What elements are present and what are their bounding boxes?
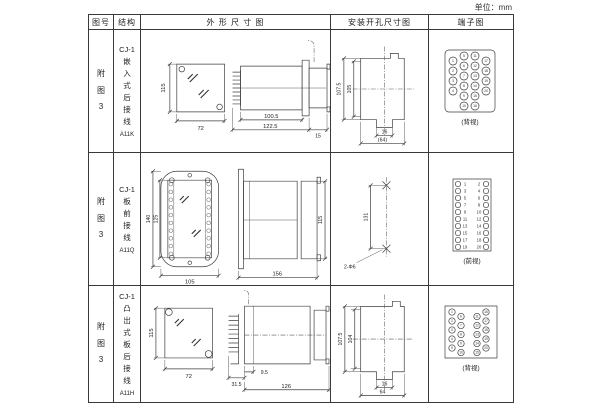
svg-text:19: 19 bbox=[463, 245, 468, 250]
dim-label: 115 bbox=[161, 83, 167, 92]
table-row-a11q: 附图3 CJ-1 板前接线 A11Q bbox=[89, 153, 513, 286]
dim-label: 122.5 bbox=[263, 124, 277, 130]
model-label: CJ-1 bbox=[119, 45, 135, 54]
svg-text:12: 12 bbox=[475, 324, 479, 328]
svg-text:1: 1 bbox=[452, 59, 454, 63]
svg-text:7: 7 bbox=[464, 203, 467, 208]
terminal-cell: 1 2 3 4 5 6 7 8 9 10 11 12 13 14 15 16 1 bbox=[429, 30, 513, 152]
svg-text:3: 3 bbox=[464, 189, 467, 194]
svg-text:9: 9 bbox=[464, 210, 467, 215]
outline-drawing-a11q: 140 125 105 156 bbox=[141, 153, 330, 285]
dim-label: 64 bbox=[380, 389, 386, 395]
svg-text:15: 15 bbox=[473, 94, 477, 98]
svg-text:8: 8 bbox=[460, 333, 462, 337]
structure-cell: CJ-1 嵌入式后接线 A11K bbox=[114, 30, 141, 152]
side-view: 9.5 31.5 126 bbox=[227, 290, 330, 391]
mounting-cell: 107.5 105 16 (64) bbox=[331, 30, 429, 152]
fig-no-text: 附图3 bbox=[97, 319, 105, 369]
svg-text:16: 16 bbox=[484, 310, 488, 314]
type-code-label: A11K bbox=[120, 132, 134, 138]
svg-text:3: 3 bbox=[452, 79, 454, 83]
mounting-drawing-a11k: 107.5 105 16 (64) bbox=[331, 30, 428, 152]
svg-text:19: 19 bbox=[484, 79, 488, 83]
side-view: 156 115 bbox=[236, 169, 327, 279]
front-view: 140 125 105 bbox=[146, 169, 221, 285]
svg-text:18: 18 bbox=[477, 238, 482, 243]
dim-label: 115 bbox=[318, 216, 324, 224]
dim-label: 104 bbox=[348, 335, 354, 344]
dim-label: 107.5 bbox=[338, 332, 344, 345]
mounting-cell: 131 2-Φ6 bbox=[331, 153, 429, 285]
mounting-cell: 107.5 104 16 64 bbox=[331, 286, 429, 402]
svg-text:16: 16 bbox=[477, 231, 482, 236]
outline-drawing-a11k: 115 72 100.5 bbox=[141, 30, 330, 152]
svg-text:12: 12 bbox=[477, 217, 482, 222]
dim-label: 16 bbox=[382, 130, 388, 136]
svg-text:16: 16 bbox=[473, 104, 477, 108]
svg-text:9: 9 bbox=[463, 94, 465, 98]
spec-table: 图号 结构 外 形 尺 寸 图 安装开孔尺寸图 端子图 附图3 CJ-1 嵌入式… bbox=[88, 14, 514, 403]
fig-no-text: 附图3 bbox=[97, 194, 105, 244]
structure-cell: CJ-1 板前接线 A11Q bbox=[114, 153, 141, 285]
terminal-drawing-a11h: 1 2 3 4 5 6 7 8 9 10 11 12 13 14 15 16 1 bbox=[429, 286, 513, 402]
front-view: 115 72 bbox=[149, 306, 215, 380]
svg-text:18: 18 bbox=[484, 328, 488, 332]
svg-text:8: 8 bbox=[478, 203, 481, 208]
hole-spec-label: 2-Φ6 bbox=[344, 264, 356, 270]
fig-no-cell: 附图3 bbox=[89, 153, 114, 285]
dim-label: 31.5 bbox=[231, 382, 241, 388]
structure-cell: CJ-1 凸出式板后接线 A11H bbox=[114, 286, 141, 402]
front-view: 115 72 bbox=[161, 62, 227, 132]
svg-text:15: 15 bbox=[475, 351, 479, 355]
mount-type-label: 凸出式板后接线 bbox=[123, 303, 131, 387]
view-label: (背视) bbox=[461, 117, 478, 126]
terminal-cell: 1 2 3 4 5 6 7 8 9 10 11 12 13 14 15 16 1 bbox=[429, 286, 513, 402]
terminal-circles: 1 2 3 4 5 6 7 8 9 10 11 12 13 14 15 16 1 bbox=[449, 309, 489, 356]
svg-text:14: 14 bbox=[477, 224, 482, 229]
svg-text:14: 14 bbox=[475, 342, 479, 346]
svg-text:10: 10 bbox=[462, 104, 466, 108]
header-terminal: 端子图 bbox=[429, 15, 513, 29]
svg-text:12: 12 bbox=[473, 64, 477, 68]
svg-text:10: 10 bbox=[477, 210, 482, 215]
table-header-row: 图号 结构 外 形 尺 寸 图 安装开孔尺寸图 端子图 bbox=[89, 15, 513, 30]
dim-label: 156 bbox=[272, 272, 282, 278]
svg-text:2: 2 bbox=[451, 319, 453, 323]
svg-text:13: 13 bbox=[475, 333, 479, 337]
header-fig-no: 图号 bbox=[89, 15, 114, 29]
dim-label: 15 bbox=[315, 134, 321, 140]
view-label: (前视) bbox=[463, 256, 480, 265]
terminal-circles: 1 2 3 4 5 6 7 8 9 10 11 12 13 14 15 16 1 bbox=[449, 52, 490, 110]
mounting-drawing-a11q: 131 2-Φ6 bbox=[331, 153, 428, 285]
fig-no-cell: 附图3 bbox=[89, 30, 114, 152]
terminal-circles: 1 3 5 7 9 11 13 15 17 19 2 4 6 8 10 12 1 bbox=[455, 181, 488, 249]
side-view: 100.5 122.5 15 bbox=[231, 40, 330, 139]
svg-text:20: 20 bbox=[477, 245, 482, 250]
svg-text:11: 11 bbox=[475, 315, 479, 319]
dim-label: 140 bbox=[146, 215, 152, 224]
type-code-label: A11Q bbox=[120, 248, 135, 254]
header-structure: 结构 bbox=[114, 15, 141, 29]
svg-text:13: 13 bbox=[473, 74, 477, 78]
dim-label: 115 bbox=[149, 328, 155, 337]
terminal-drawing-a11k: 1 2 3 4 5 6 7 8 9 10 11 12 13 14 15 16 1 bbox=[429, 30, 513, 152]
dim-label: 105 bbox=[347, 85, 353, 94]
svg-text:1: 1 bbox=[464, 182, 467, 187]
svg-text:17: 17 bbox=[484, 319, 488, 323]
svg-text:2: 2 bbox=[452, 69, 454, 73]
svg-text:5: 5 bbox=[463, 54, 465, 58]
terminal-cell: 1 3 5 7 9 11 13 15 17 19 2 4 6 8 10 12 1 bbox=[429, 153, 513, 285]
dim-label: 16 bbox=[382, 382, 388, 388]
outline-cell: 115 72 100.5 bbox=[141, 30, 331, 152]
fig-no-text: 附图3 bbox=[97, 66, 105, 116]
svg-text:4: 4 bbox=[452, 89, 454, 93]
view-label: (背视) bbox=[462, 363, 479, 372]
terminal-drawing-a11q: 1 3 5 7 9 11 13 15 17 19 2 4 6 8 10 12 1 bbox=[429, 153, 513, 285]
dim-label: (64) bbox=[378, 137, 387, 143]
svg-text:20: 20 bbox=[484, 346, 488, 350]
svg-text:2: 2 bbox=[478, 182, 481, 187]
table-row-a11h: 附图3 CJ-1 凸出式板后接线 A11H 115 7 bbox=[89, 286, 513, 402]
svg-text:7: 7 bbox=[463, 74, 465, 78]
dim-label: 125 bbox=[153, 215, 159, 224]
dim-label: 100.5 bbox=[264, 114, 278, 120]
dim-label: 107.5 bbox=[336, 82, 342, 95]
table-row-a11k: 附图3 CJ-1 嵌入式后接线 A11K 115 72 bbox=[89, 30, 513, 153]
svg-text:1: 1 bbox=[451, 310, 453, 314]
model-label: CJ-1 bbox=[119, 185, 135, 194]
svg-text:11: 11 bbox=[463, 217, 468, 222]
svg-text:17: 17 bbox=[484, 59, 488, 63]
svg-text:4: 4 bbox=[451, 337, 453, 341]
svg-text:6: 6 bbox=[478, 196, 481, 201]
terminal-strip-dots bbox=[169, 182, 211, 255]
mounting-drawing-a11h: 107.5 104 16 64 bbox=[331, 286, 428, 402]
svg-text:5: 5 bbox=[451, 346, 453, 350]
dim-label: 126 bbox=[281, 384, 291, 390]
mount-type-label: 板前接线 bbox=[123, 196, 131, 244]
outline-cell: 115 72 9 bbox=[141, 286, 331, 402]
svg-text:19: 19 bbox=[484, 337, 488, 341]
svg-text:6: 6 bbox=[463, 64, 465, 68]
dim-label: 72 bbox=[186, 374, 192, 380]
unit-label: 单位：mm bbox=[88, 2, 512, 13]
header-mounting: 安装开孔尺寸图 bbox=[331, 15, 429, 29]
dim-label: 105 bbox=[185, 280, 195, 285]
svg-text:5: 5 bbox=[464, 196, 467, 201]
type-code-label: A11H bbox=[120, 391, 135, 397]
svg-text:9: 9 bbox=[460, 342, 462, 346]
svg-text:14: 14 bbox=[473, 84, 477, 88]
svg-text:18: 18 bbox=[484, 69, 488, 73]
outline-drawing-a11h: 115 72 9 bbox=[141, 286, 330, 402]
svg-text:17: 17 bbox=[463, 238, 468, 243]
mount-type-label: 嵌入式后接线 bbox=[123, 56, 131, 128]
svg-text:10: 10 bbox=[459, 351, 463, 355]
svg-text:6: 6 bbox=[460, 315, 462, 319]
outline-cell: 140 125 105 156 bbox=[141, 153, 331, 285]
header-outline: 外 形 尺 寸 图 bbox=[141, 15, 331, 29]
dim-label: 9.5 bbox=[261, 370, 268, 376]
fig-no-cell: 附图3 bbox=[89, 286, 114, 402]
dim-label: 72 bbox=[197, 126, 203, 132]
svg-text:13: 13 bbox=[463, 224, 468, 229]
svg-text:11: 11 bbox=[473, 54, 477, 58]
svg-text:20: 20 bbox=[484, 89, 488, 93]
svg-text:4: 4 bbox=[478, 189, 481, 194]
dim-label: 131 bbox=[364, 213, 370, 222]
svg-text:8: 8 bbox=[463, 84, 465, 88]
svg-text:3: 3 bbox=[451, 328, 453, 332]
model-label: CJ-1 bbox=[119, 292, 135, 301]
svg-text:15: 15 bbox=[463, 231, 468, 236]
svg-text:7: 7 bbox=[460, 324, 462, 328]
